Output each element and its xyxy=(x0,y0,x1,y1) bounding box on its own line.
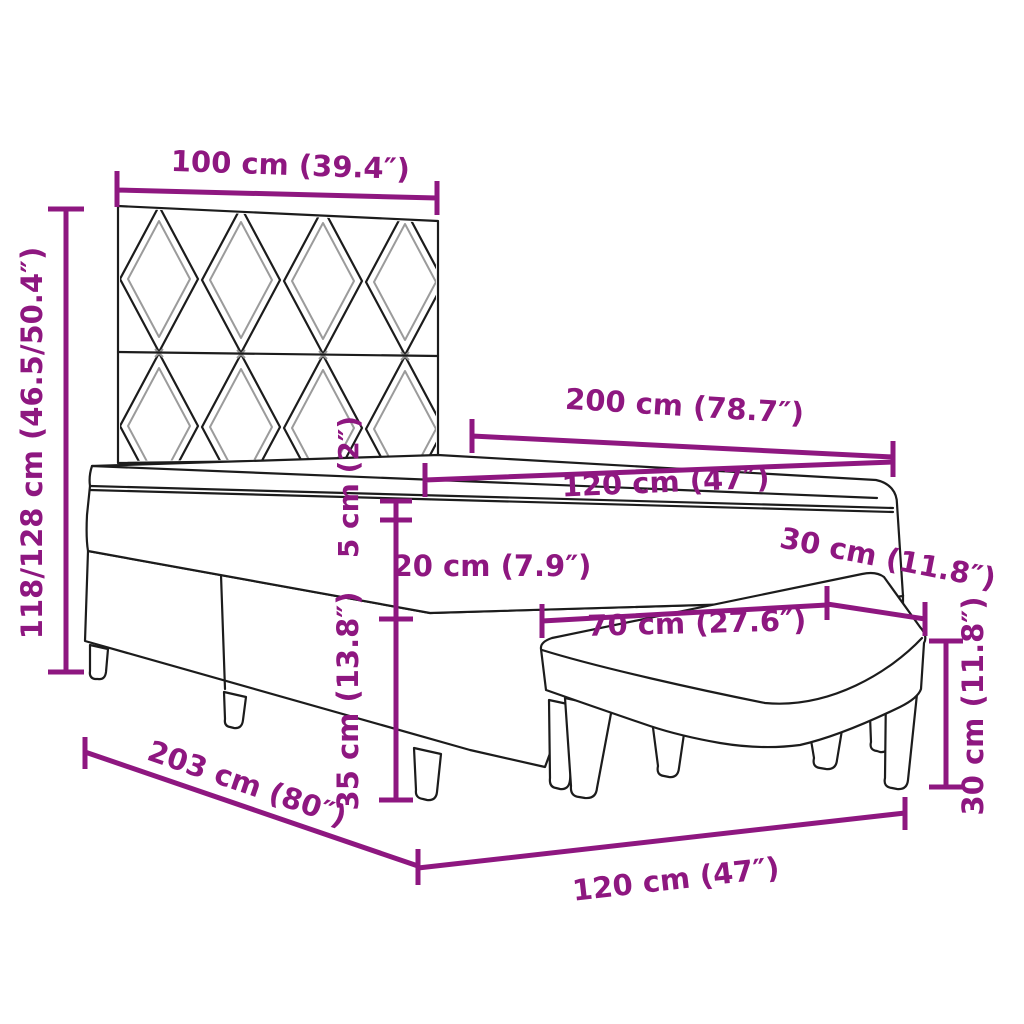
dim-label-frame-width: 120 cm (47″) xyxy=(571,850,781,907)
bench-leg xyxy=(565,698,612,798)
dim-label-total-height: 118/128 cm (46.5/50.4″) xyxy=(15,247,49,639)
dim-label-mattress-thickness: 20 cm (7.9″) xyxy=(393,549,592,583)
dim-frame-width: 120 cm (47″) xyxy=(418,797,905,908)
dim-label-bench-length: 70 cm (27.6″) xyxy=(587,603,807,643)
dim-total-height: 118/128 cm (46.5/50.4″) xyxy=(15,209,84,672)
dim-headboard-width: 100 cm (39.4″) xyxy=(117,144,437,215)
dim-label-bed-length: 200 cm (78.7″) xyxy=(564,382,805,431)
dim-label-base-height: 35 cm (13.8″) xyxy=(331,592,365,811)
bed-leg xyxy=(224,692,246,728)
bed-leg xyxy=(414,748,441,800)
dim-label-topper-thickness: 5 cm (2″) xyxy=(332,416,365,558)
dim-bench-height: 30 cm (11.8″) xyxy=(929,597,990,816)
bed-leg xyxy=(90,645,108,679)
dim-label-headboard-width: 100 cm (39.4″) xyxy=(170,144,410,186)
bed-dimension-diagram: 100 cm (39.4″) 118/128 cm (46.5/50.4″) 2… xyxy=(0,0,1024,1024)
dim-frame-length: 203 cm (80″) xyxy=(85,734,418,885)
dim-label-bench-height: 30 cm (11.8″) xyxy=(956,597,990,816)
